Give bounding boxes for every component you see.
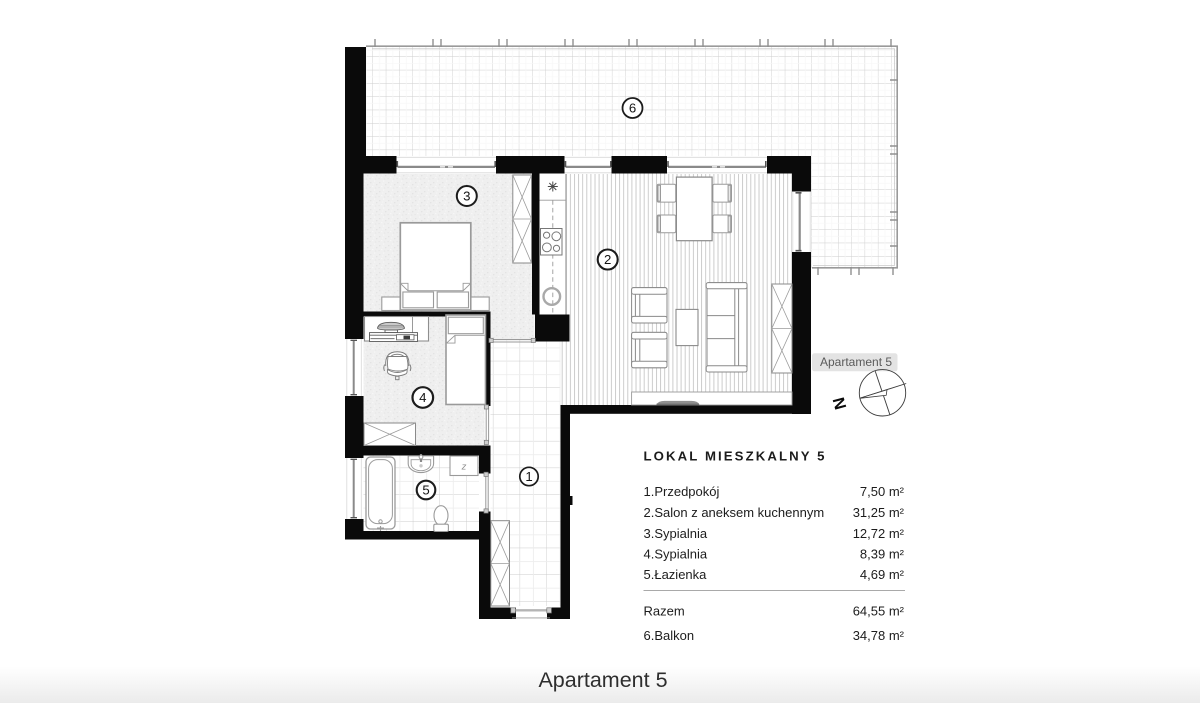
svg-text:Razem: Razem [644,604,685,619]
svg-text:34,78 m²: 34,78 m² [853,628,905,643]
svg-text:LOKAL MIESZKALNY 5: LOKAL MIESZKALNY 5 [644,449,827,464]
svg-text:5.Łazienka: 5.Łazienka [644,567,708,582]
svg-text:1.Przedpokój: 1.Przedpokój [644,484,720,499]
svg-text:6: 6 [629,101,636,116]
svg-text:2: 2 [604,252,611,267]
svg-text:8,39 m²: 8,39 m² [860,546,905,561]
svg-text:Apartament 5: Apartament 5 [820,355,892,369]
svg-text:4: 4 [419,390,426,405]
svg-text:6.Balkon: 6.Balkon [644,628,695,643]
svg-text:31,25 m²: 31,25 m² [853,505,905,520]
svg-text:N: N [830,395,850,411]
svg-text:3: 3 [463,189,470,204]
svg-text:Apartament 5: Apartament 5 [538,668,667,692]
svg-text:1: 1 [525,469,532,484]
svg-text:4,69 m²: 4,69 m² [860,567,905,582]
svg-text:5: 5 [422,483,429,498]
svg-text:4.Sypialnia: 4.Sypialnia [644,546,708,561]
svg-text:2.Salon z aneksem kuchennym: 2.Salon z aneksem kuchennym [644,505,825,520]
svg-text:12,72 m²: 12,72 m² [853,526,905,541]
svg-text:7,50 m²: 7,50 m² [860,484,905,499]
svg-text:3.Sypialnia: 3.Sypialnia [644,526,708,541]
svg-text:z: z [461,462,467,473]
svg-text:64,55 m²: 64,55 m² [853,604,905,619]
